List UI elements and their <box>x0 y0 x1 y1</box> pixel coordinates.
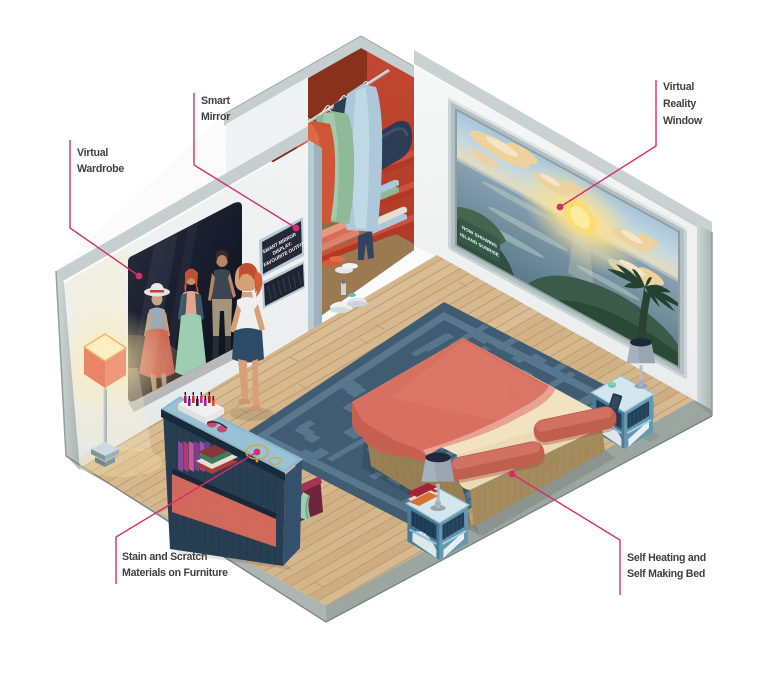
svg-text:Wardrobe: Wardrobe <box>77 163 124 175</box>
svg-text:Self Heating and: Self Heating and <box>627 552 706 564</box>
svg-text:Window: Window <box>663 115 703 127</box>
svg-text:Materials on Furniture: Materials on Furniture <box>122 567 228 579</box>
svg-text:Virtual: Virtual <box>77 147 108 159</box>
svg-text:Virtual: Virtual <box>663 81 694 93</box>
svg-text:Stain and Scratch: Stain and Scratch <box>122 551 207 563</box>
svg-text:Reality: Reality <box>663 98 696 110</box>
svg-text:Mirror: Mirror <box>201 111 230 123</box>
svg-text:Smart: Smart <box>201 95 230 107</box>
svg-text:Self Making Bed: Self Making Bed <box>627 568 705 580</box>
